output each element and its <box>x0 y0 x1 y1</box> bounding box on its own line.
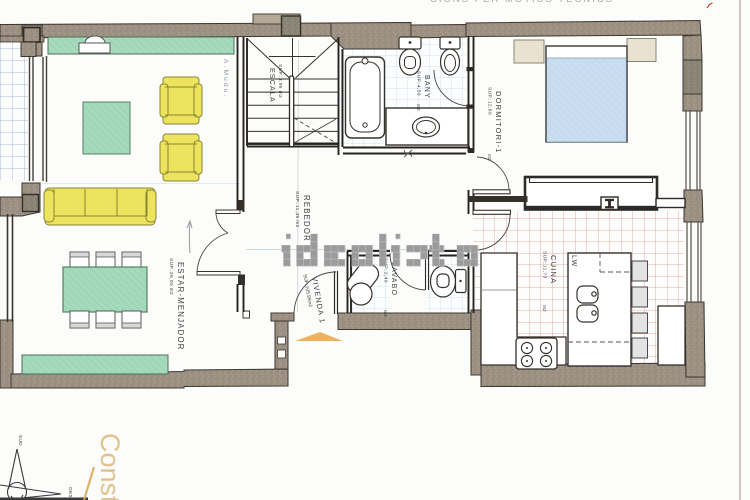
svg-text:m2: m2 <box>541 305 547 312</box>
svg-text:SUP.:26,00 m2: SUP.:26,00 m2 <box>168 258 174 295</box>
svg-text:LW: LW <box>570 255 577 267</box>
svg-text:REBEDOR: REBEDOR <box>302 195 311 242</box>
svg-text:Construccions: Construccions <box>95 433 125 500</box>
svg-text:DORMITORI-1: DORMITORI-1 <box>494 91 503 154</box>
svg-text:ESTAR-MENJADOR: ESTAR-MENJADOR <box>176 262 185 351</box>
svg-text:CIONS PER MOTIUS TECNICS: CIONS PER MOTIUS TECNICS <box>430 0 614 5</box>
svg-text:m2: m2 <box>415 104 421 111</box>
svg-text:SUP.:3,95 m2: SUP.:3,95 m2 <box>277 64 283 98</box>
svg-text:SUD: SUD <box>18 435 23 446</box>
svg-text:m2: m2 <box>486 154 492 161</box>
svg-text:SUP.:11,45 m2: SUP.:11,45 m2 <box>294 191 300 228</box>
svg-text:SUP.:12,60: SUP.:12,60 <box>487 87 493 115</box>
svg-text:m2: m2 <box>382 310 388 317</box>
svg-text:CUINA: CUINA <box>549 255 558 284</box>
svg-text:SUP.:4,50: SUP.:4,50 <box>416 71 422 96</box>
svg-text:LAVABO: LAVABO <box>390 262 397 296</box>
svg-text:A.Mudu.: A.Mudu. <box>222 59 229 99</box>
svg-text:ESCALA: ESCALA <box>268 68 275 103</box>
svg-text:SUP.:11,70: SUP.:11,70 <box>542 251 548 279</box>
svg-text:BANY: BANY <box>423 75 430 99</box>
